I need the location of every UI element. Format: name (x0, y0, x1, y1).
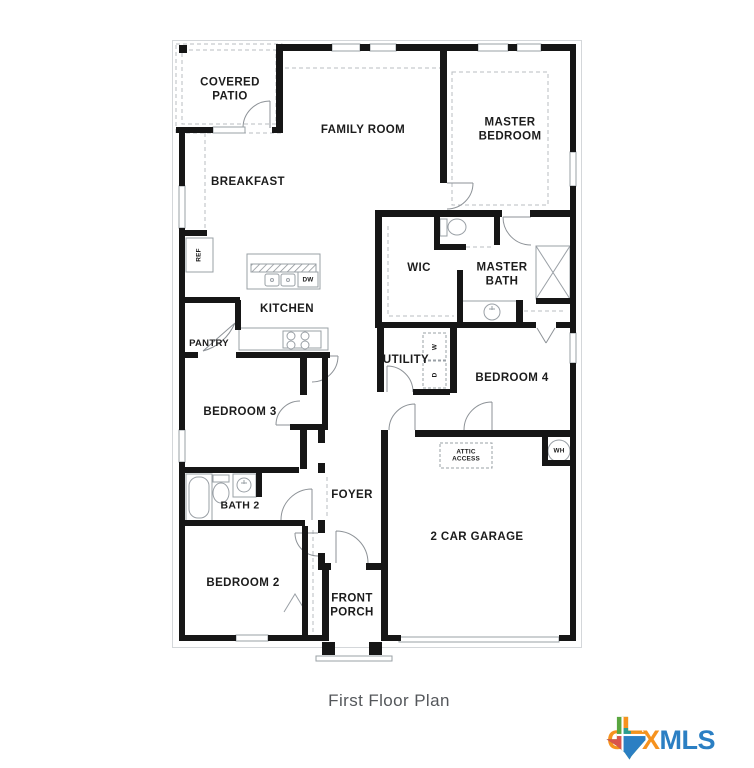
bath2-door (281, 489, 312, 520)
master-shower (536, 246, 570, 299)
plan-caption: First Floor Plan (328, 691, 450, 711)
room-label-wic: WIC (407, 261, 431, 275)
room-label-bedroom2: BEDROOM 2 (206, 576, 279, 590)
dishwasher-label: DW (302, 276, 313, 283)
floor-plan: COVERED PATIO FAMILY ROOM MASTER BEDROOM… (0, 0, 754, 768)
water-heater-label: WH (553, 447, 564, 454)
texas-icon (605, 716, 647, 761)
room-label-master-bedroom: MASTER BEDROOM (465, 116, 555, 145)
ctxmls-logo: CTXMLS (605, 716, 753, 764)
room-label-utility: UTILITY (383, 353, 429, 367)
room-label-bedroom4: BEDROOM 4 (475, 371, 548, 385)
master-bath-door (503, 217, 531, 245)
room-label-garage: 2 CAR GARAGE (431, 530, 524, 544)
bath2-sink (233, 474, 256, 497)
floor-plan-drawing (0, 0, 754, 768)
room-label-front-porch: FRONT PORCH (323, 592, 381, 621)
bedroom4-swing-door (537, 328, 555, 343)
room-label-bath2: BATH 2 (221, 499, 260, 512)
room-label-covered-patio: COVERED PATIO (190, 76, 270, 105)
master-toilet (440, 219, 466, 236)
dryer-label: D (431, 373, 438, 378)
room-label-kitchen: KITCHEN (260, 302, 314, 316)
logo-mls: MLS (660, 725, 716, 755)
garage-door (399, 637, 559, 642)
washer-label: W (431, 344, 438, 350)
refrigerator-label: REF (195, 248, 202, 261)
room-label-bedroom3: BEDROOM 3 (203, 405, 276, 419)
bedroom3-door (276, 401, 300, 425)
room-label-foyer: FOYER (331, 488, 373, 502)
kitchen-island (247, 254, 320, 289)
room-label-breakfast: BREAKFAST (211, 175, 285, 189)
room-label-master-bath: MASTER BATH (467, 261, 537, 290)
attic-access-label: ATTIC ACCESS (442, 449, 490, 464)
range-counter (239, 328, 328, 350)
porch-step (316, 656, 392, 661)
utility-door (387, 366, 413, 392)
garage-entry-door (389, 404, 415, 430)
room-label-family-room: FAMILY ROOM (321, 123, 405, 137)
room-label-pantry: PANTRY (189, 338, 229, 350)
bedroom4-entry-door (464, 402, 492, 430)
master-bedroom-door (447, 183, 473, 209)
bath2-tub (186, 474, 212, 521)
front-door (336, 531, 368, 563)
